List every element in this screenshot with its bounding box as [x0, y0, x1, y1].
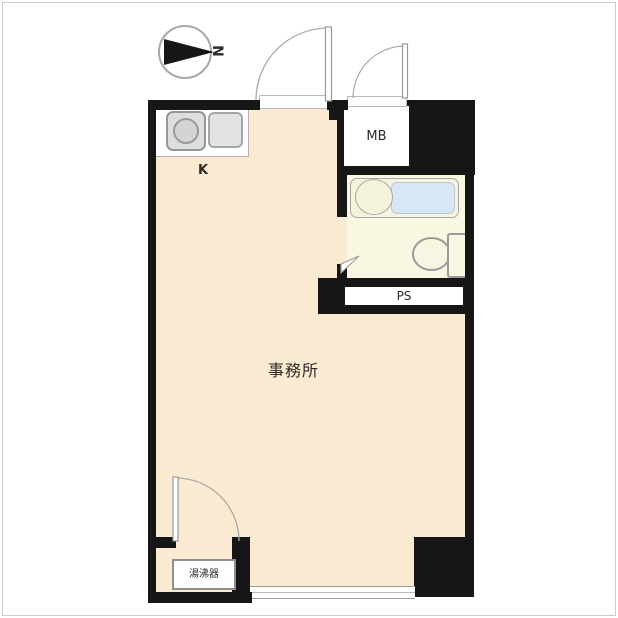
water-heater: 湯沸器	[172, 559, 236, 590]
entrance-door-leaf	[326, 27, 332, 101]
bathroom-wall-upper	[337, 175, 347, 217]
meter-box-label: MB	[366, 130, 386, 143]
wall-entry-stub	[329, 108, 338, 120]
meter-box-door-arc	[353, 46, 405, 98]
wall-bottom-left	[148, 592, 252, 603]
stove-icon	[166, 111, 206, 151]
window-pane-line	[250, 592, 415, 593]
entrance-door-arc	[256, 28, 328, 100]
entrance-threshold	[259, 95, 329, 109]
meter-box-door-leaf	[403, 44, 408, 98]
meter-box-threshold	[347, 96, 407, 107]
office-room-label: 事務所	[268, 363, 319, 379]
stove-burner-icon	[173, 118, 199, 144]
water-heater-label: 湯沸器	[189, 570, 219, 580]
meter-box: MB	[344, 106, 409, 166]
kitchen-sink	[208, 112, 243, 148]
wash-basin	[355, 179, 393, 215]
window	[250, 586, 415, 599]
toilet-tank	[447, 233, 467, 278]
bathtub	[391, 182, 455, 214]
kitchen-label: K	[198, 164, 208, 177]
pipe-space-label: PS	[397, 290, 412, 302]
floor-plan: N MB PS K 事務所 湯沸器	[0, 0, 618, 618]
north-label: N	[210, 45, 224, 57]
wall-top-left	[148, 100, 260, 110]
toilet-bowl	[412, 237, 451, 271]
wall-right	[465, 100, 474, 597]
wall-left	[148, 100, 156, 603]
pipe-space: PS	[345, 287, 463, 305]
